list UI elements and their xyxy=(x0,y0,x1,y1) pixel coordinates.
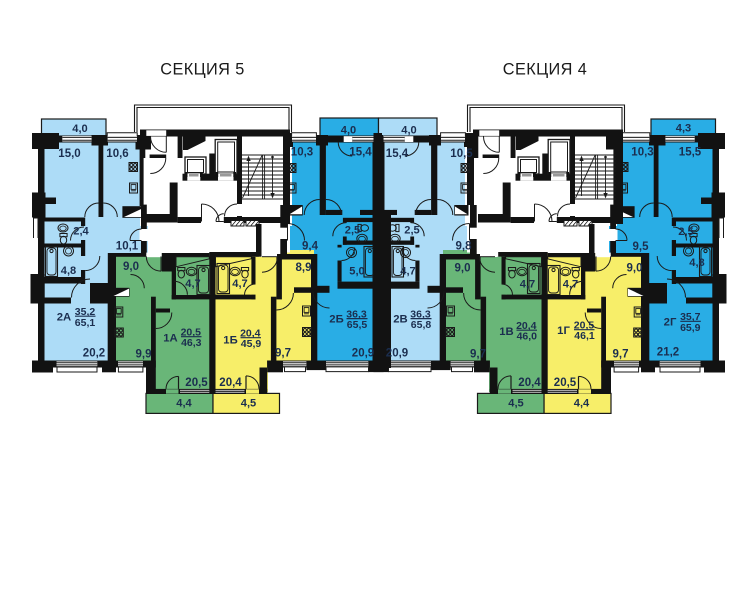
svg-text:46,0: 46,0 xyxy=(517,331,538,343)
svg-text:2,4: 2,4 xyxy=(73,226,89,238)
svg-text:1Г: 1Г xyxy=(557,325,570,337)
svg-text:4,4: 4,4 xyxy=(574,398,590,410)
svg-text:4,3: 4,3 xyxy=(676,123,691,135)
svg-text:2,5: 2,5 xyxy=(678,226,693,238)
svg-text:9,7: 9,7 xyxy=(613,349,629,361)
svg-text:15,0: 15,0 xyxy=(58,148,80,160)
svg-text:9,9: 9,9 xyxy=(136,349,152,361)
svg-text:1Б: 1Б xyxy=(223,335,237,347)
svg-text:4,7: 4,7 xyxy=(232,278,247,290)
svg-text:4,5: 4,5 xyxy=(241,398,256,410)
svg-text:15,5: 15,5 xyxy=(679,147,702,159)
svg-text:9,4: 9,4 xyxy=(302,241,319,253)
svg-text:65,1: 65,1 xyxy=(75,317,96,329)
svg-text:4,8: 4,8 xyxy=(689,257,704,269)
svg-text:СЕКЦИЯ 4: СЕКЦИЯ 4 xyxy=(503,60,587,78)
svg-text:9,7: 9,7 xyxy=(470,349,486,361)
svg-text:20,5: 20,5 xyxy=(185,377,208,389)
svg-text:10,5: 10,5 xyxy=(450,148,473,160)
svg-text:10,1: 10,1 xyxy=(116,241,139,253)
svg-text:65,8: 65,8 xyxy=(411,319,432,331)
svg-text:20,9: 20,9 xyxy=(352,348,374,360)
svg-text:9,0: 9,0 xyxy=(627,263,643,275)
svg-text:45,9: 45,9 xyxy=(241,338,262,350)
svg-text:65,5: 65,5 xyxy=(347,319,368,331)
svg-text:4,8: 4,8 xyxy=(61,265,76,277)
svg-text:15,4: 15,4 xyxy=(386,148,409,160)
svg-text:46,1: 46,1 xyxy=(574,330,595,342)
svg-text:10,3: 10,3 xyxy=(291,147,313,159)
svg-text:4,0: 4,0 xyxy=(72,123,87,135)
svg-text:СЕКЦИЯ 5: СЕКЦИЯ 5 xyxy=(160,60,244,78)
svg-text:4,7: 4,7 xyxy=(400,266,415,278)
svg-text:20,9: 20,9 xyxy=(386,348,408,360)
svg-text:9,0: 9,0 xyxy=(455,263,471,275)
svg-text:20,4: 20,4 xyxy=(219,377,242,389)
svg-text:20,5: 20,5 xyxy=(554,377,577,389)
svg-text:4,7: 4,7 xyxy=(563,279,578,291)
svg-text:2,5: 2,5 xyxy=(404,225,419,237)
svg-text:4,5: 4,5 xyxy=(508,398,523,410)
svg-text:2А: 2А xyxy=(57,312,71,324)
svg-text:8,9: 8,9 xyxy=(296,262,312,274)
svg-text:10,6: 10,6 xyxy=(106,148,128,160)
svg-text:20,4: 20,4 xyxy=(518,377,541,389)
svg-text:15,4: 15,4 xyxy=(349,147,372,159)
svg-text:2Г: 2Г xyxy=(664,317,677,329)
svg-text:4,7: 4,7 xyxy=(185,278,200,290)
svg-text:9,7: 9,7 xyxy=(275,348,291,360)
svg-text:20,2: 20,2 xyxy=(83,348,105,360)
svg-text:4,0: 4,0 xyxy=(401,125,416,137)
svg-text:5,0: 5,0 xyxy=(349,266,364,278)
svg-text:2Б: 2Б xyxy=(329,314,343,326)
svg-text:65,9: 65,9 xyxy=(680,322,701,334)
svg-text:1А: 1А xyxy=(163,333,177,345)
svg-text:4,7: 4,7 xyxy=(520,279,535,291)
svg-text:4,0: 4,0 xyxy=(341,125,356,137)
svg-text:2,5: 2,5 xyxy=(345,225,360,237)
svg-text:9,0: 9,0 xyxy=(123,261,139,273)
svg-text:46,3: 46,3 xyxy=(181,337,202,349)
svg-text:1В: 1В xyxy=(499,326,513,338)
svg-text:9,8: 9,8 xyxy=(456,241,473,253)
svg-text:4,4: 4,4 xyxy=(176,398,192,410)
svg-text:9,5: 9,5 xyxy=(633,241,650,253)
svg-text:10,3: 10,3 xyxy=(631,147,653,159)
svg-text:2В: 2В xyxy=(393,314,407,326)
svg-text:21,2: 21,2 xyxy=(657,347,679,359)
